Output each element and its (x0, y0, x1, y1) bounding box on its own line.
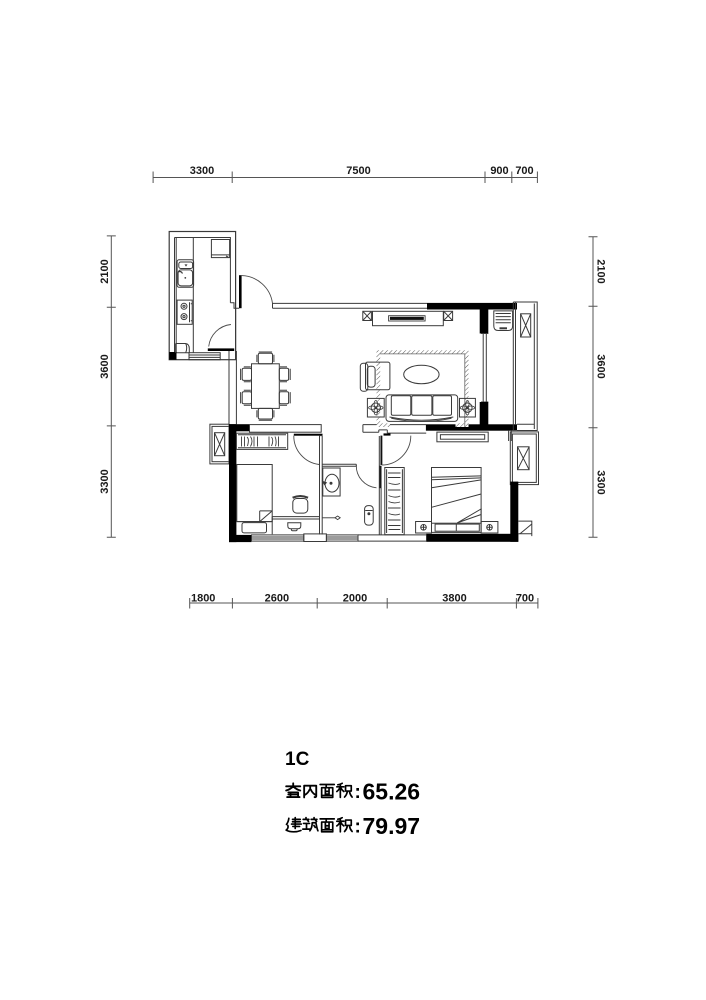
svg-text:3300: 3300 (190, 165, 214, 177)
svg-text:1800: 1800 (191, 592, 215, 604)
svg-text:2100: 2100 (595, 259, 607, 283)
svg-text:1C: 1C (285, 749, 310, 770)
svg-text::: : (355, 782, 361, 803)
svg-text:700: 700 (516, 592, 534, 604)
svg-text:3300: 3300 (595, 470, 607, 494)
svg-text:2600: 2600 (265, 592, 289, 604)
svg-text:7500: 7500 (346, 165, 370, 177)
svg-text:65.26: 65.26 (363, 779, 421, 805)
svg-text:3600: 3600 (99, 354, 111, 378)
svg-text:2100: 2100 (99, 259, 111, 283)
svg-text:3600: 3600 (595, 354, 607, 378)
svg-text:79.97: 79.97 (363, 813, 421, 839)
svg-text:3800: 3800 (442, 592, 466, 604)
svg-text:2000: 2000 (343, 592, 367, 604)
svg-text:700: 700 (515, 165, 533, 177)
svg-text::: : (355, 816, 361, 837)
svg-text:900: 900 (490, 165, 508, 177)
svg-text:3300: 3300 (99, 469, 111, 493)
